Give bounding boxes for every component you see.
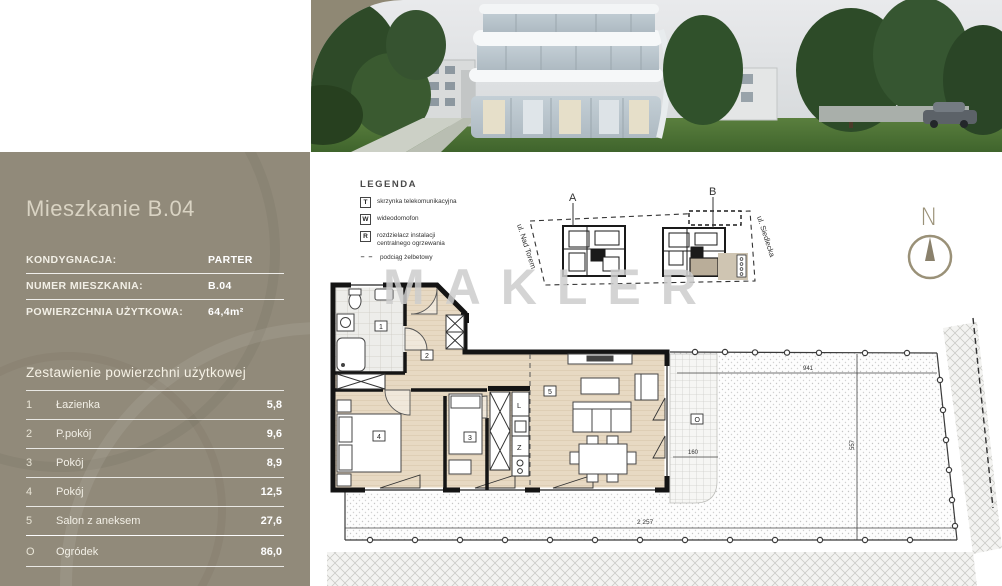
detail-label: POWIERZCHNIA UŻYTKOWA: — [26, 306, 208, 318]
building-a-label: A — [569, 192, 577, 204]
detail-value: B.04 — [208, 280, 284, 292]
north-label: N — [898, 203, 962, 231]
table-row: 2 P.pokój 9,6 — [26, 420, 284, 449]
room-name: Salon z aneksem — [56, 515, 261, 527]
detail-row-number: NUMER MIESZKANIA: B.04 — [26, 274, 284, 300]
building-render-illustration — [311, 0, 1002, 152]
detail-value: 64,4m² — [208, 306, 284, 318]
room-name: Pokój — [56, 486, 261, 498]
legend-item-text: skrzynka telekomunikacyjna — [377, 197, 457, 206]
room-label-2: 2 — [425, 353, 429, 360]
bottom-walkway — [327, 552, 977, 586]
legend-item-text: podciąg żelbetowy — [380, 253, 433, 262]
page-title: Mieszkanie B.04 — [26, 196, 284, 222]
legend-item: – – podciąg żelbetowy — [360, 253, 515, 262]
area-table: 1 Łazienka 5,8 2 P.pokój 9,6 3 Pokój 8,9… — [26, 390, 284, 567]
street-left-label: ul. Nad Torem — [515, 223, 538, 270]
dishwasher-label: Z — [517, 443, 522, 452]
detail-label: KONDYGNACJA: — [26, 254, 208, 266]
table-row: 4 Pokój 12,5 — [26, 478, 284, 507]
apartment-card-page: Mieszkanie B.04 KONDYGNACJA: PARTER NUME… — [0, 0, 1002, 586]
building-photo-frame — [311, 0, 1002, 152]
legend-item-text: wideodomofon — [377, 214, 419, 223]
fridge-label: L — [517, 401, 521, 410]
room-number: 4 — [26, 486, 56, 498]
detail-label: NUMER MIESZKANIA: — [26, 280, 208, 292]
room-number: 3 — [26, 457, 56, 469]
telecom-box-icon: T — [360, 197, 371, 208]
legend: LEGENDA T skrzynka telekomunikacyjna W w… — [360, 179, 515, 268]
area-table-title: Zestawienie powierzchni użytkowej — [26, 365, 284, 380]
terrace-paving — [670, 354, 717, 503]
floor-plan: 941 557 160 2 257 — [325, 268, 1002, 586]
legend-item: W wideodomofon — [360, 214, 515, 225]
room-name: Pokój — [56, 457, 267, 469]
apartment-info-sidebar: Mieszkanie B.04 KONDYGNACJA: PARTER NUME… — [0, 152, 310, 586]
room-label-5: 5 — [548, 389, 552, 396]
room-label-4: 4 — [377, 434, 381, 441]
table-row-garden: O Ogródek 86,0 — [26, 538, 284, 567]
pantry-cabinet — [490, 392, 510, 470]
room-label-3: 3 — [468, 435, 472, 442]
room-name: Ogródek — [56, 546, 261, 558]
dim-garden-depth: 557 — [850, 439, 856, 450]
room-number: 5 — [26, 515, 56, 527]
table-row: 3 Pokój 8,9 — [26, 449, 284, 478]
room-number: O — [26, 546, 56, 558]
main-building — [469, 4, 668, 138]
building-photo — [311, 0, 1002, 152]
room-name: Łazienka — [56, 399, 267, 411]
legend-title: LEGENDA — [360, 179, 515, 190]
detail-row-area: POWIERZCHNIA UŻYTKOWA: 64,4m² — [26, 300, 284, 325]
legend-item-text: rozdzielacz instalacji centralnego ogrze… — [377, 231, 445, 247]
dashed-line-icon: – – — [360, 253, 374, 262]
dim-garden-width: 941 — [803, 366, 814, 372]
room-area: 5,8 — [267, 399, 282, 411]
table-row: 5 Salon z aneksem 27,6 — [26, 507, 284, 536]
table-row: 1 Łazienka 5,8 — [26, 391, 284, 420]
room-label-1: 1 — [379, 324, 383, 331]
detail-value: PARTER — [208, 254, 284, 266]
room-name: P.pokój — [56, 428, 267, 440]
heating-box-icon: R — [360, 231, 371, 242]
legend-item: R rozdzielacz instalacji centralnego ogr… — [360, 231, 515, 247]
intercom-box-icon: W — [360, 214, 371, 225]
dim-terrace-width: 160 — [688, 450, 699, 456]
room-area: 12,5 — [261, 486, 282, 498]
dim-plot-width: 2 257 — [637, 519, 654, 526]
street-right-label: ul. Siedlecka — [755, 215, 777, 259]
room-number: 2 — [26, 428, 56, 440]
room-label-garden: O — [695, 417, 701, 424]
room-area: 27,6 — [261, 515, 282, 527]
room-area: 8,9 — [267, 457, 282, 469]
room-area: 9,6 — [267, 428, 282, 440]
building-b-label: B — [709, 186, 716, 198]
room-number: 1 — [26, 399, 56, 411]
legend-item: T skrzynka telekomunikacyjna — [360, 197, 515, 208]
detail-row-floor: KONDYGNACJA: PARTER — [26, 248, 284, 274]
room-area: 86,0 — [261, 546, 282, 558]
